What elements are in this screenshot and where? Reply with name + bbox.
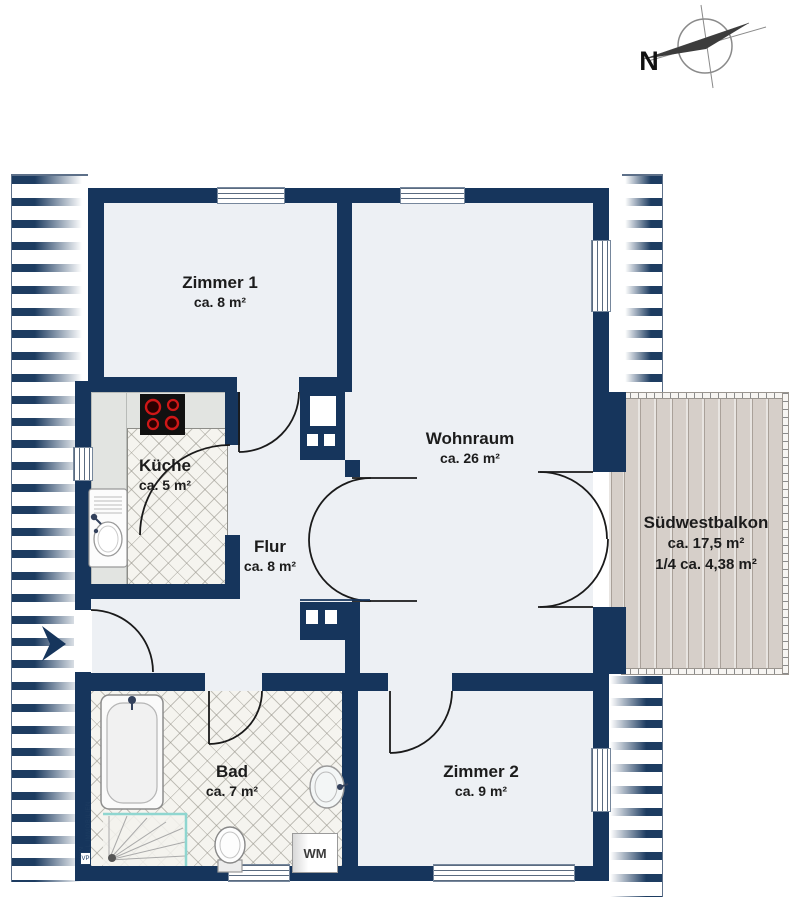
door-arc-entrance [91, 610, 153, 672]
room-label-kueche: Küche ca. 5 m² [95, 455, 235, 494]
toilet-icon [215, 827, 245, 872]
washbasin-icon [310, 766, 348, 808]
entrance-arrow-icon [42, 626, 66, 661]
room-label-wohnraum: Wohnraum ca. 26 m² [370, 428, 570, 467]
room-label-flur: Flur ca. 8 m² [200, 536, 340, 575]
double-door-arc-flur-top [309, 478, 371, 540]
door-arc-zimmer2 [390, 691, 452, 753]
washing-machine-label: WM [303, 846, 326, 861]
watermark-logo: VP [80, 852, 91, 865]
washing-machine: WM [292, 833, 338, 873]
floor-plan: WM Zimmer 1 ca. 8 m² Küche ca. 5 m² Flur… [0, 0, 800, 907]
shower-icon [103, 813, 187, 866]
door-arc-zimmer1 [239, 392, 299, 452]
kitchen-sink-icon [89, 489, 127, 567]
room-label-balkon: Südwestbalkon ca. 17,5 m² 1/4 ca. 4,38 m… [620, 513, 792, 575]
balcony-door-arc-top [540, 472, 607, 539]
balcony-door-arc-bottom [540, 539, 608, 607]
room-label-zimmer2: Zimmer 2 ca. 9 m² [391, 761, 571, 800]
door-arc-bath [209, 691, 262, 744]
stove-icon [140, 394, 185, 435]
room-label-zimmer1: Zimmer 1 ca. 8 m² [120, 272, 320, 311]
room-label-bad: Bad ca. 7 m² [152, 761, 312, 800]
compass-label: N [634, 46, 664, 77]
watermark: VON POLL IMMOBILIEN [79, 793, 93, 861]
